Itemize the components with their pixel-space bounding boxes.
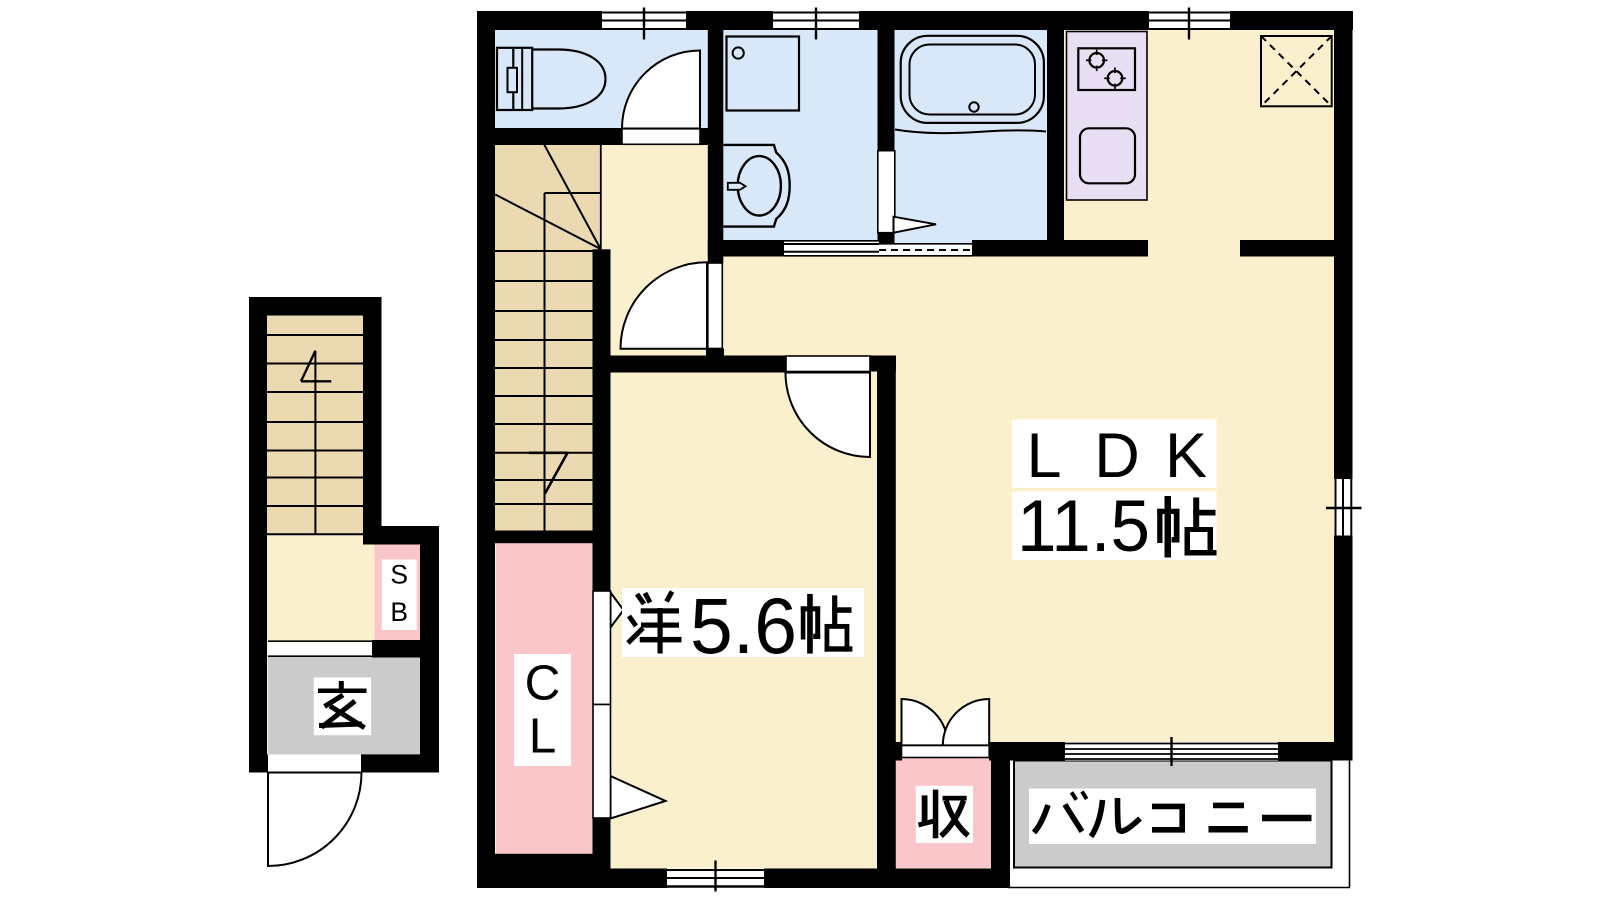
svg-text:L: L (529, 708, 557, 763)
svg-text:11.5: 11.5 (1017, 484, 1150, 567)
svg-text:B: B (390, 597, 408, 627)
svg-text:D: D (1094, 421, 1140, 491)
svg-text:5.6: 5.6 (690, 581, 797, 670)
svg-text:C: C (525, 656, 561, 711)
svg-text:K: K (1165, 421, 1207, 491)
svg-text:S: S (390, 559, 408, 589)
svg-text:L: L (1026, 421, 1061, 491)
